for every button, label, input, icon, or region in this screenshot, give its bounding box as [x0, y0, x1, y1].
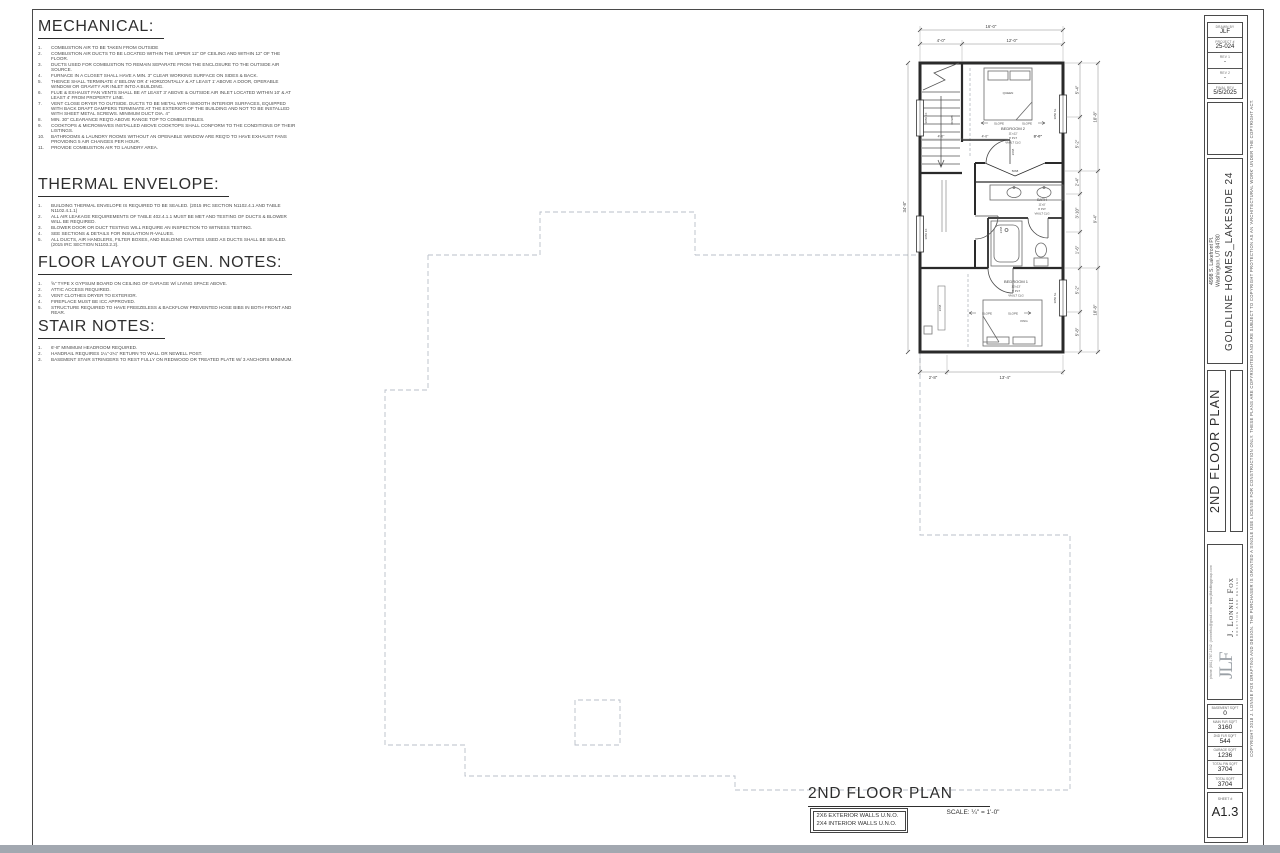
king-bed — [983, 300, 1042, 346]
room-plate-bath: 9' PLT — [1038, 207, 1046, 211]
wall-note-line2: 2X4 INTERIOR WALLS U.N.O. — [817, 821, 905, 829]
window-label: 3050 FX — [924, 112, 928, 123]
sheet-number-label: SHEET # — [1218, 797, 1233, 801]
info-row-drawn-by: DRAWN BY JLF — [1208, 23, 1242, 38]
dim-label: 1'-6" — [1075, 245, 1080, 254]
page-edge — [0, 845, 1280, 853]
bathroom-fixtures — [990, 185, 1063, 266]
room-label-bedroom2: BEDROOM 2 — [1001, 126, 1026, 131]
room-size-bedroom2: 11'x12' — [1009, 132, 1018, 136]
dim-label: 5'-8" — [1075, 327, 1080, 336]
closets — [924, 180, 946, 334]
wall-note-line1: 2X6 EXTERIOR WALLS U.N.O. — [817, 813, 905, 821]
room-plate-bedroom2: 9' PLT — [1009, 136, 1017, 140]
window-label: 3050 SL — [1053, 108, 1057, 119]
dim-label: 4'-0" — [982, 135, 990, 139]
bathtub — [991, 221, 1022, 266]
sheet-title-vertical: 2ND FLOOR PLAN — [1208, 372, 1225, 530]
sqft-value: 1236 — [1218, 752, 1232, 759]
info-row-final-rev: FINAL REV 5/5/2025 — [1208, 84, 1242, 99]
sqft-value: 0 — [1223, 710, 1227, 717]
sqft-row: BASEMENT SQFT 0 — [1208, 705, 1242, 719]
dim-label: 5'-2" — [1075, 285, 1080, 294]
sqft-value: 544 — [1220, 738, 1231, 745]
dim-label: 2'-8" — [929, 375, 938, 380]
room-ceiling-bath: VAULT CLG — [1034, 212, 1049, 216]
info-value: - — [1224, 75, 1226, 81]
copyright-notice: COPYRIGHT 2018 J. LONNIE FOX DRAFTING AN… — [1249, 15, 1260, 841]
bed-label-queen: QUEEN — [1003, 91, 1014, 95]
window-label: 3050 FX — [924, 228, 928, 239]
dim-label: 9'-4" — [1093, 214, 1098, 223]
sqft-row: 2ND FLR SQFT 544 — [1208, 733, 1242, 747]
info-row-rev1: REV 1 - — [1208, 53, 1242, 68]
room-label-bath: BATH — [1037, 198, 1047, 202]
room-ceiling-bedroom1: VAULT CLG — [1008, 294, 1024, 298]
title-block-empty-box — [1207, 102, 1243, 155]
sqft-value: 3704 — [1218, 766, 1232, 773]
room-plate-bedroom1: 9' PLT — [1012, 289, 1020, 293]
door-label: 2468 — [999, 226, 1003, 233]
info-value: JLF — [1220, 29, 1230, 35]
project-name: GOLDLINE HOMES_LAKESIDE 24 — [1224, 160, 1241, 362]
dim-label: 4'-0" — [937, 38, 946, 43]
sqft-row: MAIN FLR SQFT 3160 — [1208, 719, 1242, 733]
door-label: 5068 — [1012, 169, 1019, 173]
wall-note-box: 2X6 EXTERIOR WALLS U.N.O. 2X4 INTERIOR W… — [810, 808, 908, 833]
room-label-bedroom1: BEDROOM 1 — [1004, 279, 1029, 284]
dim-label: 4'-0" — [938, 135, 946, 139]
dim-label: 10'-8" — [1093, 111, 1098, 122]
sqft-value: 3704 — [1218, 781, 1232, 788]
jlf-logo: JLF — [1216, 636, 1244, 696]
sqft-row: TOTAL SQFT 3704 — [1208, 775, 1242, 789]
info-value: - — [1224, 59, 1226, 65]
room-labels: BEDROOM 2 11'x12' 9' PLT VAULT CLG BATH … — [1001, 91, 1050, 323]
sheet-number: A1.3 — [1212, 804, 1239, 819]
title-block-empty-box-2 — [1230, 370, 1243, 532]
dim-label: 13'-4" — [1000, 375, 1011, 380]
dimension-labels: 16'-0" 4'-0" 12'-0" 5'-4" 5'-2" 2'-4" 3'… — [902, 24, 1098, 380]
window-label: 3050 SL — [1053, 292, 1057, 303]
drawing-sheet: { "notes": { "mechanical": { "title": "M… — [0, 0, 1280, 853]
project-address: 4998 S. Lakefront Pl. Washington, UT 847… — [1209, 160, 1223, 362]
sqft-row: GARAGE SQFT 1236 — [1208, 747, 1242, 761]
toilet — [1036, 243, 1047, 257]
slope-label: SLOPE — [1008, 312, 1018, 316]
dim-label: 5'-2" — [1075, 139, 1080, 148]
info-row-project: PROJECT # 25-024 — [1208, 38, 1242, 53]
bed-label-king: KING — [1020, 319, 1028, 323]
sqft-row: TOTAL FIN SQFT 3704 — [1208, 761, 1242, 775]
title-block-info: DRAWN BY JLF PROJECT # 25-024 REV 1 - RE… — [1207, 22, 1243, 99]
floor-plan-drawing: 16'-0" 4'-0" 12'-0" 5'-4" 5'-2" 2'-4" 3'… — [0, 0, 1280, 853]
stair-direction-label: DOWN — [950, 115, 954, 125]
main-floor-dashed-outline — [385, 212, 1070, 790]
address-line2: Washington, UT 84780 — [1216, 160, 1223, 362]
dim-label: 8'-0" — [1034, 134, 1043, 139]
door-label: 2668 — [1011, 148, 1015, 155]
dim-label: 2'-4" — [1075, 177, 1080, 186]
dim-label: 16'-0" — [986, 24, 997, 29]
room-size-bedroom1: 12'x13' — [1012, 285, 1021, 289]
room-ceiling-bedroom2: VAULT CLG — [1005, 141, 1021, 145]
sqft-table: BASEMENT SQFT 0 MAIN FLR SQFT 3160 2ND F… — [1207, 704, 1243, 789]
dim-label: 5'-4" — [1075, 85, 1080, 94]
ridge-lines — [968, 68, 970, 348]
dim-label: 10'-8" — [1093, 304, 1098, 315]
door-label: 2668 — [938, 304, 942, 311]
room-size-bath: 11'x5' — [1039, 203, 1046, 207]
slope-label: SLOPE — [994, 122, 1004, 126]
dim-label: 3'-10" — [1075, 207, 1080, 218]
sheet-number-box: SHEET # A1.3 — [1207, 792, 1243, 838]
info-row-rev2: REV 2 - — [1208, 69, 1242, 84]
info-value: 25-024 — [1216, 44, 1235, 50]
dim-label: 12'-0" — [1007, 38, 1018, 43]
schedule-labels: 3050 FX 3050 FX 3050 SL 3050 SL 2668 246… — [924, 108, 1057, 311]
doors — [975, 140, 1048, 293]
sqft-value: 3160 — [1218, 724, 1232, 731]
dimension-lines — [908, 26, 1100, 375]
plan-title: 2ND FLOOR PLAN — [808, 785, 990, 807]
info-value: 5/5/2025 — [1213, 90, 1236, 96]
slope-label: SLOPE — [982, 312, 992, 316]
slope-label: SLOPE — [1022, 122, 1032, 126]
dim-label: 34'-8" — [902, 201, 907, 212]
plan-scale: SCALE: ¼" = 1'-0" — [908, 809, 1038, 816]
